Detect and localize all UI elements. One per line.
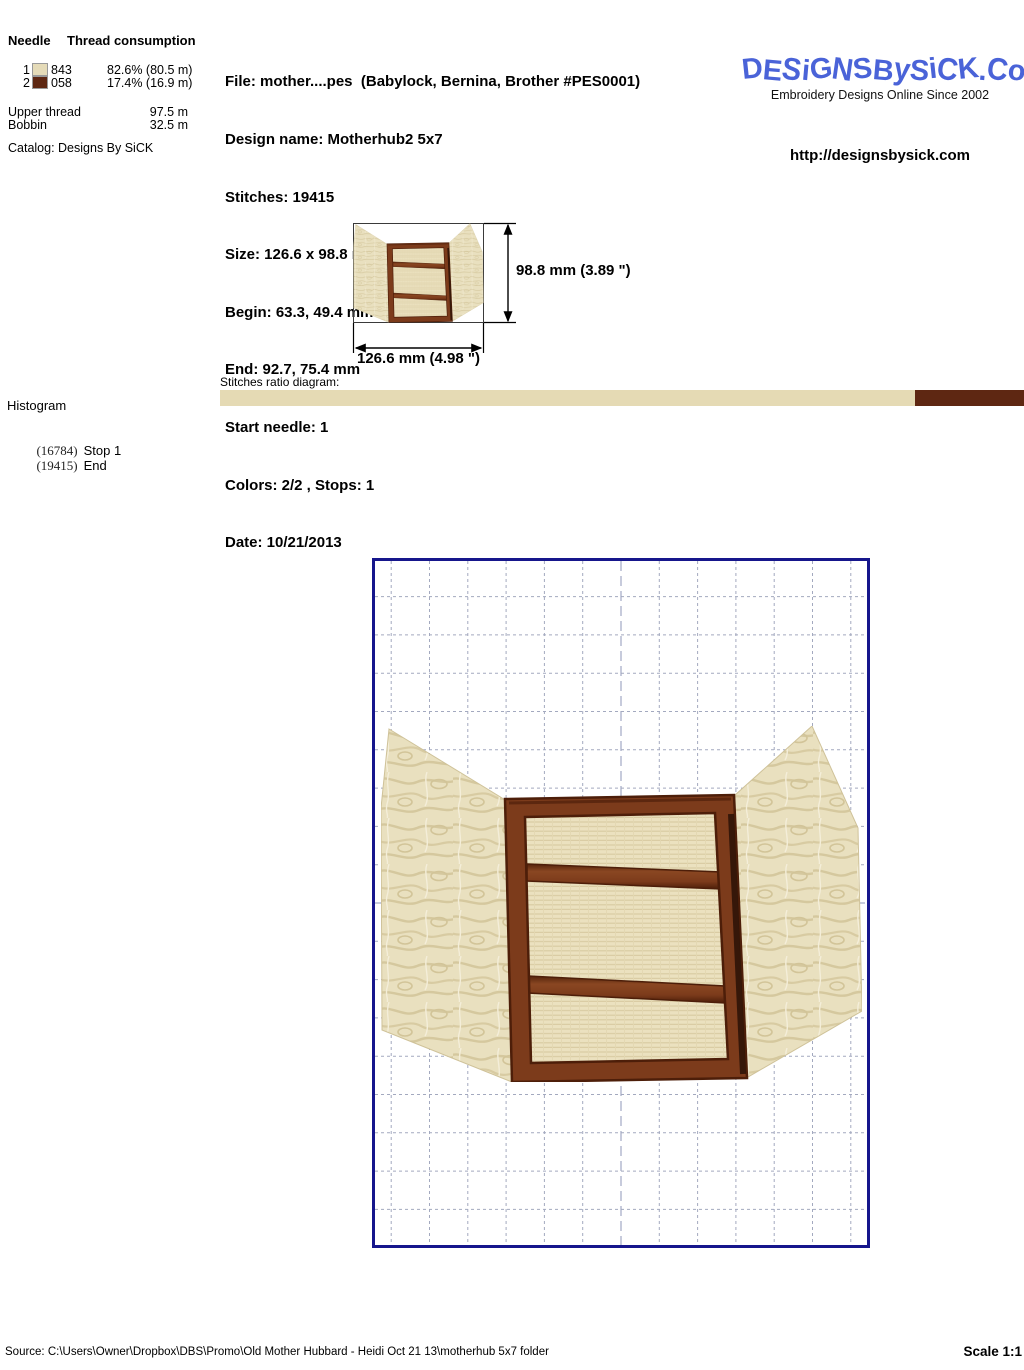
height-dimension-label: 98.8 mm (3.89 ") [516,262,631,279]
needle-row: 2 058 17.4% (16.9 m) [8,76,192,89]
colors-line: Colors: 2/2 , Stops: 1 [225,476,640,495]
designsbysick-logo: DESiGNSBySiCK.CoM [742,50,1018,90]
histogram-entry: (19415)End [22,443,107,489]
bobbin-label: Bobbin [8,118,47,132]
ratio-segment [220,390,915,406]
design-preview [375,561,867,1245]
stitch-ratio-label: Stitches ratio diagram: [220,375,339,389]
thread-consumption: 17.4% (16.9 m) [107,76,192,90]
design-name-line: Design name: Motherhub2 5x7 [225,130,640,149]
thread-color-swatch [32,63,48,76]
file-line: File: mother....pes (Babylock, Bernina, … [225,72,640,91]
needle-row: 1 843 82.6% (80.5 m) [8,63,192,76]
thread-consumption: 82.6% (80.5 m) [107,63,192,77]
needle-number: 1 [8,63,30,77]
thread-code: 058 [51,76,107,90]
upper-thread-label: Upper thread [8,105,81,119]
stitch-count: (19415) [36,458,77,473]
bobbin-row: Bobbin 32.5 m [8,118,188,132]
design-thumbnail [354,224,484,323]
brand-url-link[interactable]: http://designsbysick.com [742,147,1018,164]
catalog-line: Catalog: Designs By SiCK [8,141,153,155]
start-needle-line: Start needle: 1 [225,418,640,437]
stitches-line: Stitches: 19415 [225,188,640,207]
date-line: Date: 10/21/2013 [225,533,640,552]
consumption-column-header: Thread consumption [67,33,196,48]
thread-code: 843 [51,63,107,77]
ratio-segment [915,390,1024,406]
embroidery-design [381,726,862,1082]
thread-color-swatch [32,76,48,89]
width-dimension-label: 126.6 mm (4.98 ") [357,350,480,367]
needle-table: Needle Thread consumption [8,33,208,48]
scale-indicator: Scale 1:1 [963,1344,1022,1359]
bobbin-value: 32.5 m [150,118,188,132]
histogram-title: Histogram [7,398,66,413]
needle-number: 2 [8,76,30,90]
source-path: Source: C:\Users\Owner\Dropbox\DBS\Promo… [5,1346,549,1358]
hoop-preview-area [372,558,870,1248]
embroidery-report-page: Needle Thread consumption 1 843 82.6% (8… [0,0,1024,1370]
upper-thread-value: 97.5 m [150,105,188,119]
stitch-ratio-bar [220,390,1024,406]
end-label: End [84,458,107,473]
upper-thread-row: Upper thread 97.5 m [8,105,188,119]
brand-block: DESiGNSBySiCK.CoM Embroidery Designs Onl… [742,50,1018,102]
needle-table-header: Needle Thread consumption [8,33,208,48]
needle-column-header: Needle [8,33,67,48]
